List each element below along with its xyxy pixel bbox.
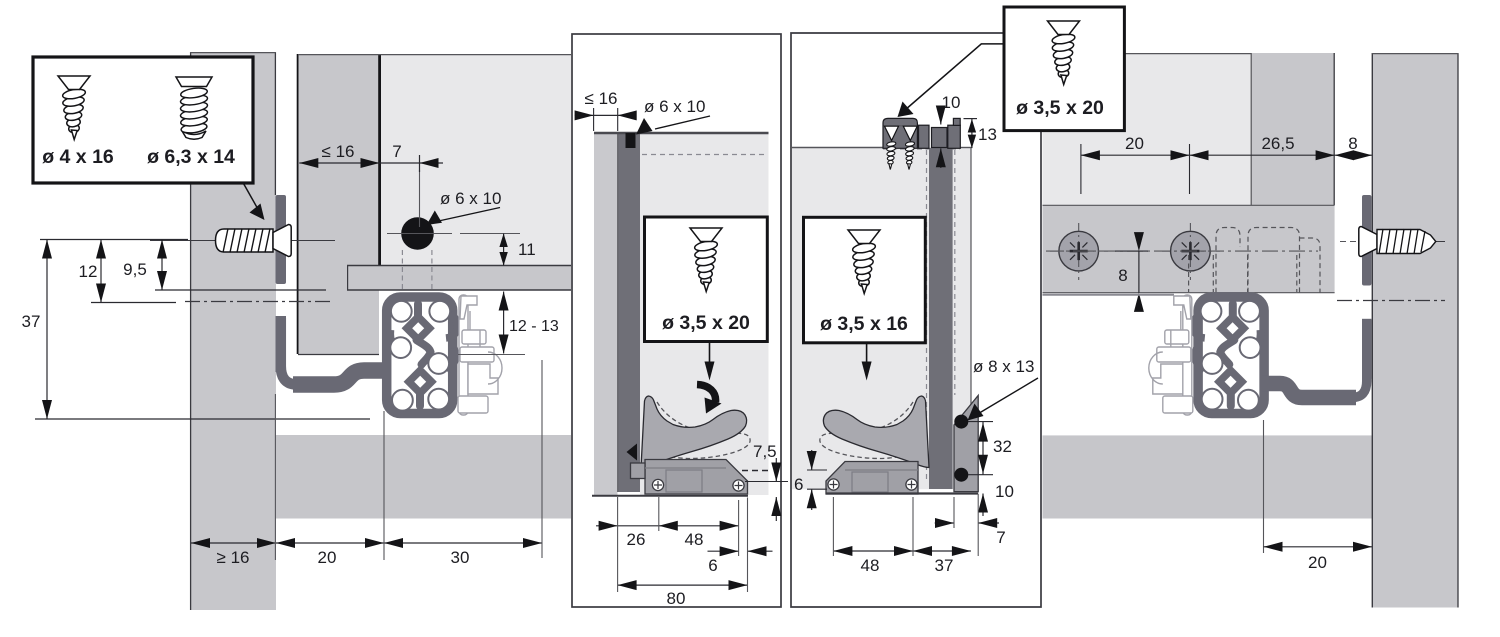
svg-text:ø 6,3 x 14: ø 6,3 x 14 <box>147 146 235 168</box>
svg-text:13: 13 <box>978 125 997 144</box>
svg-text:ø 3,5 x 20: ø 3,5 x 20 <box>1016 97 1104 119</box>
svg-text:6: 6 <box>794 475 803 494</box>
svg-text:7: 7 <box>392 142 401 161</box>
svg-text:11: 11 <box>518 240 536 259</box>
svg-text:9,5: 9,5 <box>123 260 147 279</box>
svg-text:30: 30 <box>451 548 470 567</box>
svg-text:48: 48 <box>861 556 880 575</box>
svg-text:6: 6 <box>708 556 717 575</box>
svg-text:≤ 16: ≤ 16 <box>322 142 355 161</box>
svg-text:26: 26 <box>627 530 646 549</box>
svg-text:32: 32 <box>993 437 1012 456</box>
svg-text:ø 3,5 x 16: ø 3,5 x 16 <box>820 313 908 335</box>
svg-text:20: 20 <box>1308 553 1327 572</box>
svg-text:10: 10 <box>995 482 1014 501</box>
svg-text:48: 48 <box>685 530 704 549</box>
svg-text:7,5: 7,5 <box>753 442 777 461</box>
svg-text:37: 37 <box>935 556 954 575</box>
svg-text:12: 12 <box>79 262 98 281</box>
svg-text:ø 6 x 10: ø 6 x 10 <box>440 189 501 208</box>
svg-text:7: 7 <box>996 528 1005 547</box>
svg-text:26,5: 26,5 <box>1261 134 1294 153</box>
svg-text:20: 20 <box>1125 134 1144 153</box>
svg-text:ø 8 x 13: ø 8 x 13 <box>973 357 1034 376</box>
svg-text:20: 20 <box>318 548 337 567</box>
svg-text:8: 8 <box>1348 134 1357 153</box>
svg-text:ø 3,5 x 20: ø 3,5 x 20 <box>662 312 750 334</box>
svg-text:ø 4 x 16: ø 4 x 16 <box>42 146 114 168</box>
svg-text:≤ 16: ≤ 16 <box>585 89 618 108</box>
svg-text:80: 80 <box>667 589 686 608</box>
svg-text:37: 37 <box>22 312 41 331</box>
svg-text:8: 8 <box>1118 266 1127 285</box>
svg-text:12 - 13: 12 - 13 <box>509 318 559 335</box>
svg-text:ø 6 x 10: ø 6 x 10 <box>644 97 705 116</box>
svg-text:≥ 16: ≥ 16 <box>217 548 250 567</box>
